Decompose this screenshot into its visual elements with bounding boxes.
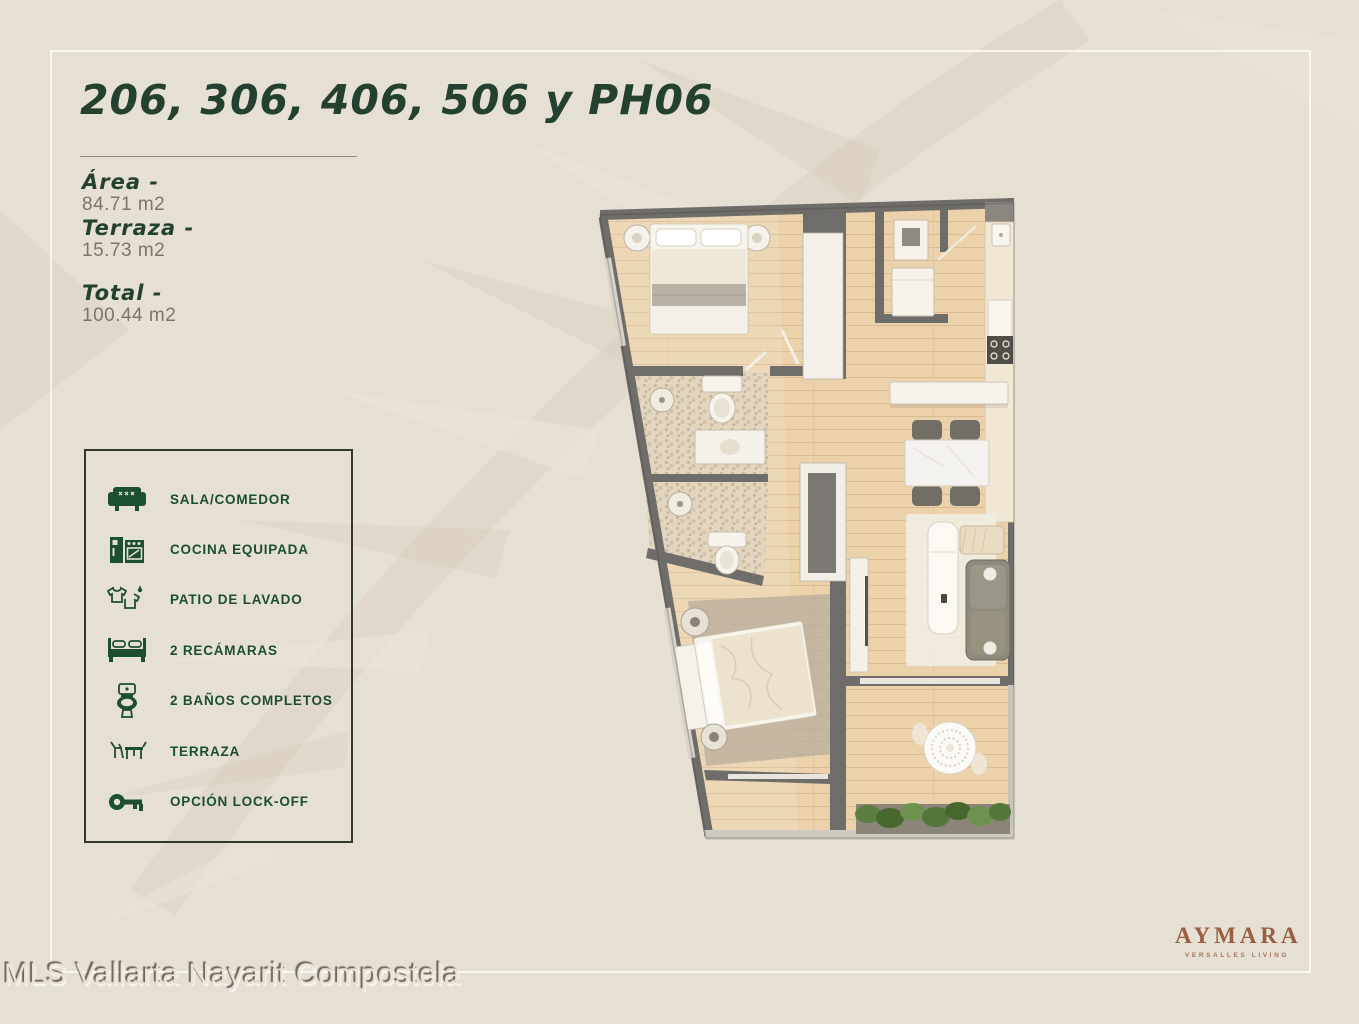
terraza-value: 15.73 m2 xyxy=(82,240,194,262)
page-title: 206, 306, 406, 506 y PH06 xyxy=(80,76,714,124)
bed-icon xyxy=(104,636,150,664)
feature-recamaras: 2 RECÁMARAS xyxy=(86,625,351,675)
key-icon xyxy=(104,790,150,814)
title-divider xyxy=(80,156,357,157)
feature-label: COCINA EQUIPADA xyxy=(170,542,309,557)
brand-tagline: VERSALLES LIVING xyxy=(1175,952,1299,959)
feature-patio: PATIO DE LAVADO xyxy=(86,575,351,625)
laundry-closet xyxy=(892,220,934,316)
mls-watermark: MLS Vallarta Nayarit Compostela xyxy=(4,958,461,992)
feature-terraza: TERRAZA xyxy=(86,726,351,776)
feature-label: 2 RECÁMARAS xyxy=(170,643,278,658)
feature-label: SALA/COMEDOR xyxy=(170,492,291,507)
feature-list-box: SALA/COMEDOR COCINA EQUIPADA xyxy=(84,449,353,843)
area-stats: Área - 84.71 m2 Terraza - 15.73 m2 Total… xyxy=(82,171,194,328)
entry-closet xyxy=(800,463,846,581)
feature-cocina: COCINA EQUIPADA xyxy=(86,524,351,574)
bedroom-2 xyxy=(674,621,817,736)
area-label: Área - xyxy=(82,171,194,194)
wardrobe xyxy=(803,233,843,379)
brand-logo: AYMARA VERSALLES LIVING xyxy=(1175,923,1299,959)
feature-label: TERRAZA xyxy=(170,744,240,759)
total-label: Total - xyxy=(82,282,194,305)
sofa-icon xyxy=(104,484,150,514)
feature-label: 2 BAÑOS COMPLETOS xyxy=(170,693,333,708)
toilet-icon xyxy=(104,683,150,719)
brand-name: AYMARA xyxy=(1175,923,1299,949)
feature-sala: SALA/COMEDOR xyxy=(86,474,351,524)
kitchen-icon xyxy=(104,534,150,566)
area-value: 84.71 m2 xyxy=(82,194,194,216)
floor-plan-illustration xyxy=(598,196,1018,844)
feature-lockoff: OPCIÓN LOCK-OFF xyxy=(86,776,351,826)
feature-label: OPCIÓN LOCK-OFF xyxy=(170,794,309,809)
total-value: 100.44 m2 xyxy=(82,305,194,327)
brochure-page: 206, 306, 406, 506 y PH06 Área - 84.71 m… xyxy=(0,0,1359,1024)
terraza-label: Terraza - xyxy=(82,217,194,240)
feature-banos: 2 BAÑOS COMPLETOS xyxy=(86,676,351,726)
terrace-icon xyxy=(104,738,150,764)
feature-label: PATIO DE LAVADO xyxy=(170,592,303,607)
laundry-icon xyxy=(104,584,150,616)
